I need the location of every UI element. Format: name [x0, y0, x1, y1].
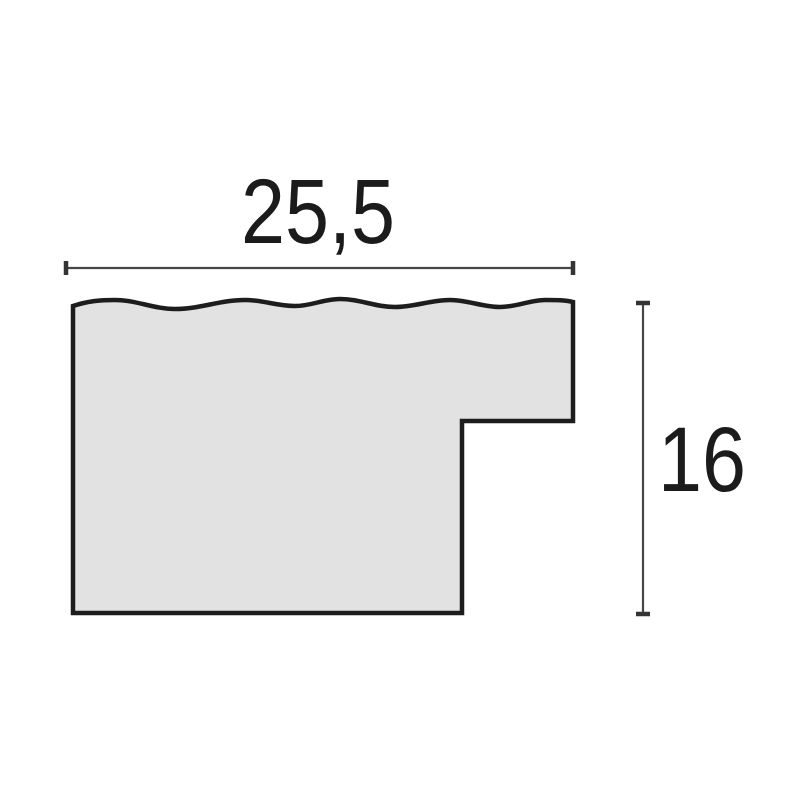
moulding-profile-shape [73, 299, 573, 613]
width-dimension-label: 25,5 [189, 166, 447, 258]
height-dimension-label: 16 [616, 414, 788, 506]
moulding-profile-drawing [0, 0, 800, 800]
technical-drawing-canvas: 25,5 16 [0, 0, 800, 800]
width-dimension [66, 261, 573, 275]
